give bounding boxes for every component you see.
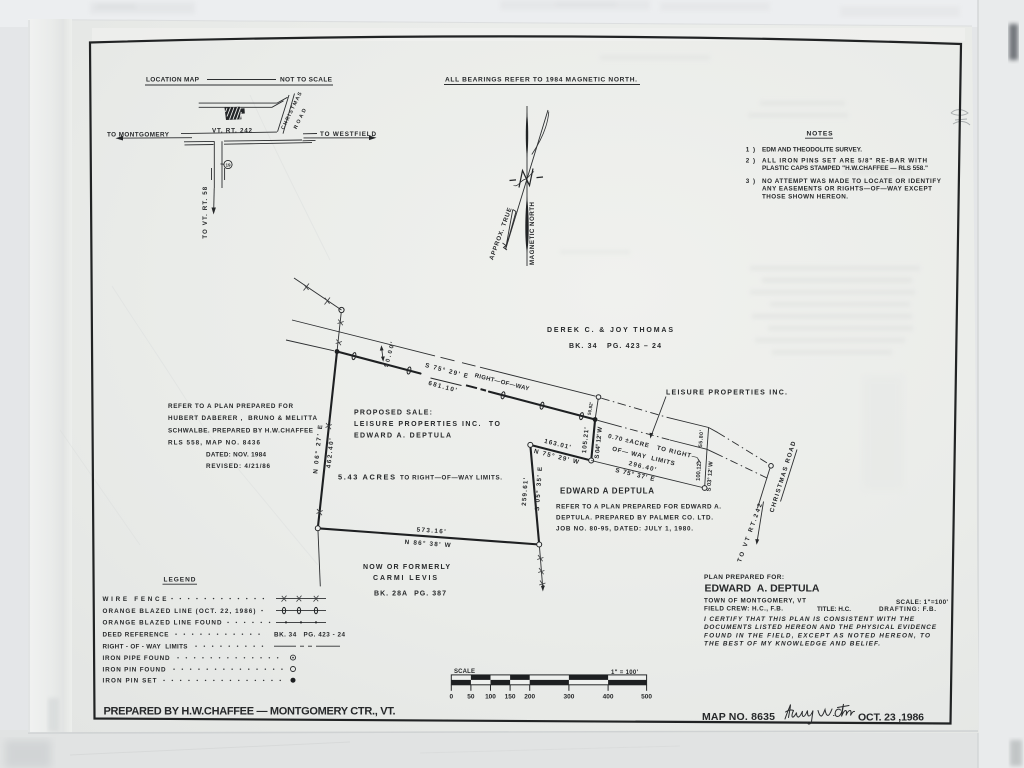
svg-text:19: 19 xyxy=(225,162,231,167)
svg-text:5.43 ACRES: 5.43 ACRES xyxy=(338,473,395,482)
svg-text:REFER TO A PLAN PREPARED FOR E: REFER TO A PLAN PREPARED FOR EDWARD A. xyxy=(556,504,721,511)
svg-text:150: 150 xyxy=(505,694,516,701)
svg-text:EDM AND THEODOLITE SURVEY.: EDM AND THEODOLITE SURVEY. xyxy=(762,147,862,154)
svg-text:RLS 558, MAP NO. 8436: RLS 558, MAP NO. 8436 xyxy=(168,440,260,447)
svg-text:DEPTULA. PREPARED BY PALMER CO: DEPTULA. PREPARED BY PALMER CO. LTD. xyxy=(556,515,713,522)
svg-text:55.80': 55.80' xyxy=(698,430,705,447)
svg-text:TO MONTGOMERY: TO MONTGOMERY xyxy=(107,132,170,139)
svg-text:TO VT. RT. 58: TO VT. RT. 58 xyxy=(202,186,209,239)
svg-text:TITLE: H.C.: TITLE: H.C. xyxy=(817,606,851,613)
svg-text:PROPOSED SALE:: PROPOSED SALE: xyxy=(354,410,432,417)
svg-text:0: 0 xyxy=(449,694,453,701)
svg-text:EDWARD A DEPTULA: EDWARD A DEPTULA xyxy=(560,487,654,496)
svg-text:DOCUMENTS LISTED HEREON AND TH: DOCUMENTS LISTED HEREON AND THE PHYSICAL… xyxy=(704,624,937,631)
svg-text:100: 100 xyxy=(485,694,496,701)
svg-text:50: 50 xyxy=(467,694,475,701)
svg-text:JOB NO. 80-95, DATED: JULY 1,: JOB NO. 80-95, DATED: JULY 1, 1980. xyxy=(556,526,693,533)
svg-text:MAGNETIC NORTH: MAGNETIC NORTH xyxy=(529,201,536,265)
svg-text:EDWARD A. DEPTULA: EDWARD A. DEPTULA xyxy=(354,433,451,440)
svg-text:LOCATION MAP: LOCATION MAP xyxy=(146,77,200,84)
svg-text:BK. 28A PG. 387: BK. 28A PG. 387 xyxy=(374,591,446,598)
svg-text:FOUND IN THE FIELD, EXCEPT AS: FOUND IN THE FIELD, EXCEPT AS NOTED HERE… xyxy=(704,633,930,640)
svg-text:THOSE SHOWN HEREON.: THOSE SHOWN HEREON. xyxy=(762,193,848,200)
svg-text:NOTES: NOTES xyxy=(807,131,834,138)
svg-text:CARMI LEVIS: CARMI LEVIS xyxy=(373,575,437,582)
svg-text:BK. 34 PG. 423 – 24: BK. 34 PG. 423 – 24 xyxy=(569,343,661,350)
svg-text:THE BEST OF MY KNOWLEDGE AND B: THE BEST OF MY KNOWLEDGE AND BELIEF. xyxy=(704,641,880,648)
svg-text:ALL BEARINGS REFER TO 1984 MAG: ALL BEARINGS REFER TO 1984 MAGNETIC NORT… xyxy=(445,77,637,84)
svg-text:3 ): 3 ) xyxy=(746,178,756,185)
svg-text:VT. RT. 242: VT. RT. 242 xyxy=(212,127,252,134)
svg-text:NOT TO SCALE: NOT TO SCALE xyxy=(280,77,333,84)
svg-text:PREPARED BY H.W.CHAFFEE — MONT: PREPARED BY H.W.CHAFFEE — MONTGOMERY CTR… xyxy=(104,706,396,718)
svg-text:IRON PIN FOUND: IRON PIN FOUND xyxy=(103,666,166,673)
svg-text:TOWN OF MONTGOMERY, VT: TOWN OF MONTGOMERY, VT xyxy=(704,598,806,605)
svg-text:TO RIGHT—OF—WAY LIMITS.: TO RIGHT—OF—WAY LIMITS. xyxy=(400,475,502,482)
svg-text:DEED REFERENCE: DEED REFERENCE xyxy=(103,631,169,638)
svg-text:I CERTIFY THAT THIS PLAN IS CO: I CERTIFY THAT THIS PLAN IS CONSISTENT W… xyxy=(704,616,915,623)
svg-text:DRAFTING: F.B.: DRAFTING: F.B. xyxy=(879,606,936,613)
svg-text:LEISURE PROPERTIES INC.: LEISURE PROPERTIES INC. xyxy=(666,390,787,397)
svg-text:IRON PIN SET: IRON PIN SET xyxy=(103,678,157,685)
svg-text:DATED: NOV. 1984: DATED: NOV. 1984 xyxy=(206,452,266,459)
svg-text:REFER TO A PLAN PREPARED FOR: REFER TO A PLAN PREPARED FOR xyxy=(168,403,293,410)
svg-text:PLAN PREPARED FOR:: PLAN PREPARED FOR: xyxy=(704,574,784,581)
svg-text:NO ATTEMPT WAS MADE TO LOCATE: NO ATTEMPT WAS MADE TO LOCATE OR IDENTIF… xyxy=(762,178,942,185)
svg-text:OCT. 23 ,1986: OCT. 23 ,1986 xyxy=(858,712,924,724)
svg-text:ALL IRON PINS SET ARE 5/8" RE-: ALL IRON PINS SET ARE 5/8" RE-BAR WITH xyxy=(762,157,927,164)
svg-text:LEGEND: LEGEND xyxy=(164,577,196,584)
svg-text:200: 200 xyxy=(524,694,535,701)
svg-text:400: 400 xyxy=(603,694,614,701)
svg-text:300: 300 xyxy=(563,694,574,701)
svg-text:500: 500 xyxy=(641,694,652,701)
svg-text:1 ): 1 ) xyxy=(746,147,756,154)
svg-text:NOW OR FORMERLY: NOW OR FORMERLY xyxy=(363,564,450,571)
svg-text:PLASTIC CAPS STAMPED "H.W.CHAF: PLASTIC CAPS STAMPED "H.W.CHAFFEE — RLS … xyxy=(762,165,928,172)
svg-text:SCALE: SCALE xyxy=(454,669,475,675)
svg-text:REVISED: 4/21/86: REVISED: 4/21/86 xyxy=(206,463,270,470)
svg-text:LEISURE PROPERTIES INC. TO: LEISURE PROPERTIES INC. TO xyxy=(354,421,501,428)
svg-text:TO WESTFIELD: TO WESTFIELD xyxy=(320,131,376,138)
svg-text:IRON PIPE FOUND: IRON PIPE FOUND xyxy=(103,655,170,662)
svg-text:ORANGE BLAZED LINE FOUND: ORANGE BLAZED LINE FOUND xyxy=(103,620,222,627)
svg-text:FIELD CREW: H.C., F.B.: FIELD CREW: H.C., F.B. xyxy=(704,606,783,613)
svg-text:RIGHT - OF - WAY LIMITS: RIGHT - OF - WAY LIMITS xyxy=(103,643,188,650)
svg-text:SCHWALBE. PREPARED BY H.W.CHAF: SCHWALBE. PREPARED BY H.W.CHAFFEE xyxy=(168,428,313,435)
svg-text:HUBERT DABERER , BRUNO & MELI: HUBERT DABERER , BRUNO & MELITTA xyxy=(168,415,317,422)
svg-text:EDWARD A. DEPTULA: EDWARD A. DEPTULA xyxy=(705,583,820,595)
svg-text:2 ): 2 ) xyxy=(746,157,756,164)
svg-text:WIRE FENCE: WIRE FENCE xyxy=(103,596,167,603)
svg-text:MAP NO. 8635: MAP NO. 8635 xyxy=(702,711,775,723)
svg-text:ANY EASEMENTS OR RIGHTS—OF—WAY: ANY EASEMENTS OR RIGHTS—OF—WAY EXCEPT xyxy=(762,186,932,193)
svg-text:SCALE: 1"=100': SCALE: 1"=100' xyxy=(896,599,949,606)
svg-text:BK. 34 PG. 423 - 24: BK. 34 PG. 423 - 24 xyxy=(274,632,345,639)
svg-text:ORANGE BLAZED LINE (OCT. 22, 1: ORANGE BLAZED LINE (OCT. 22, 1986) xyxy=(103,608,256,615)
